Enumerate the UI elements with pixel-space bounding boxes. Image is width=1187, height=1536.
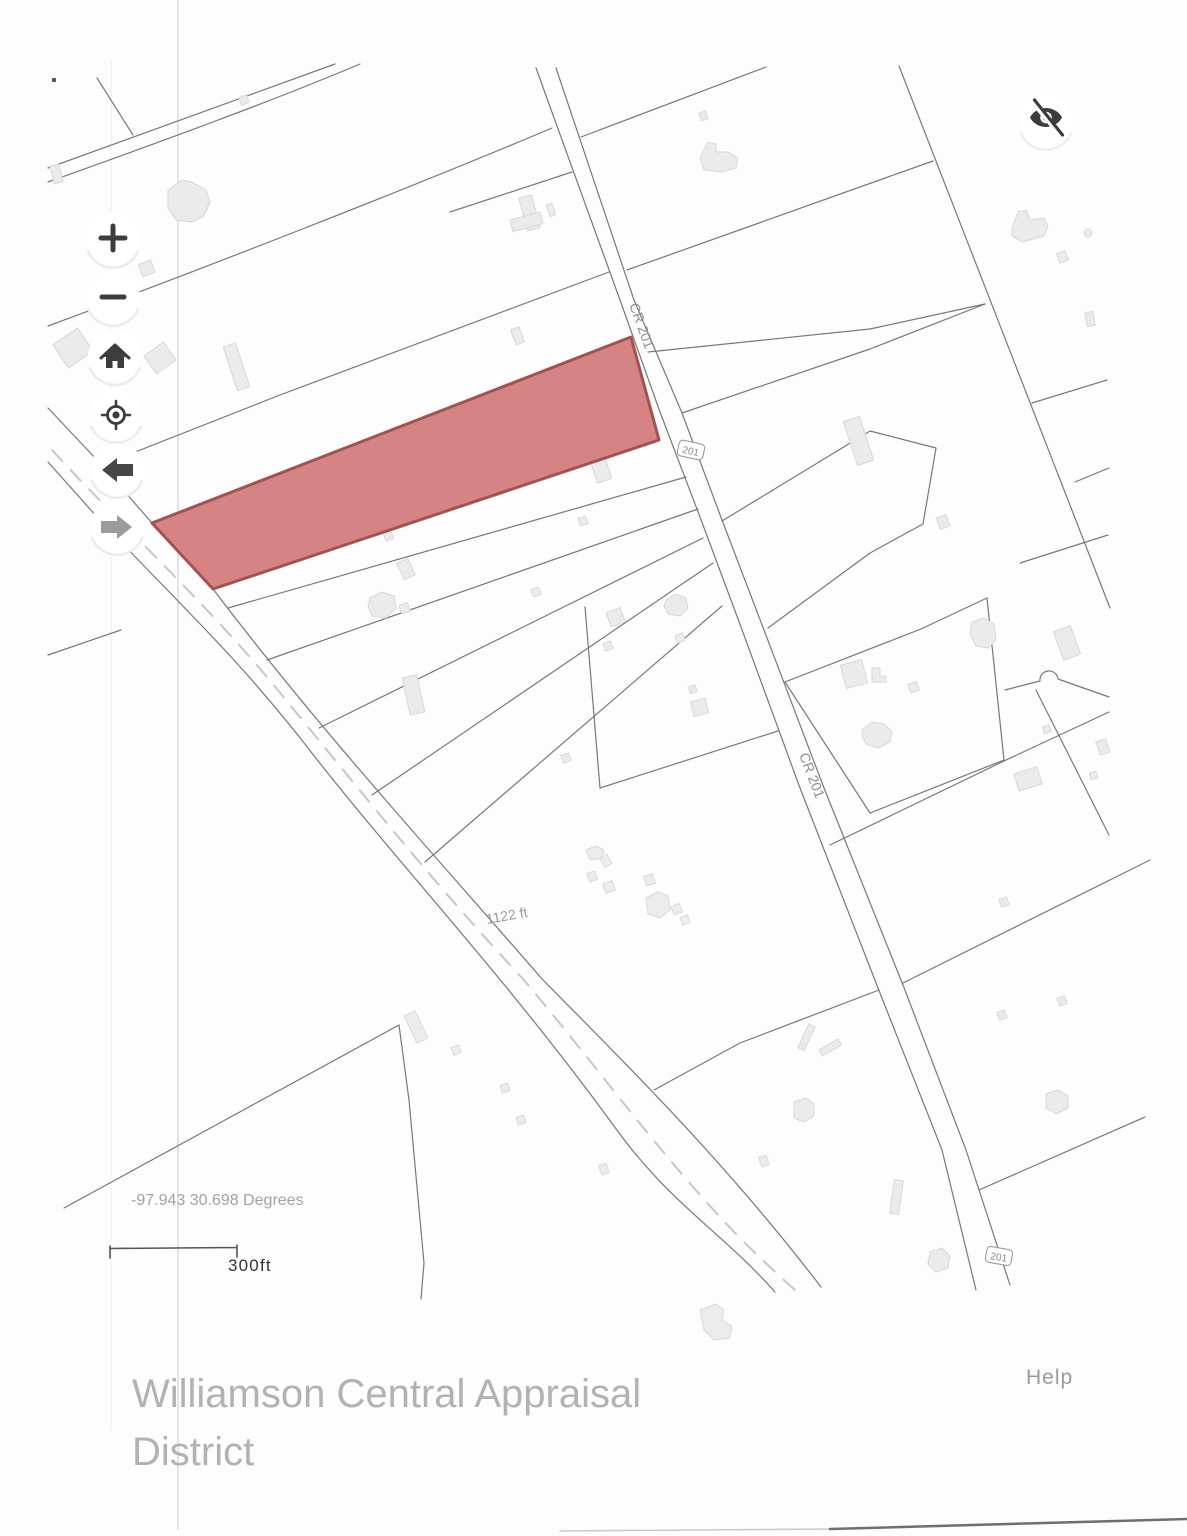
svg-text:1122 ft: 1122 ft	[485, 904, 529, 927]
svg-text:CR 201: CR 201	[796, 750, 828, 800]
